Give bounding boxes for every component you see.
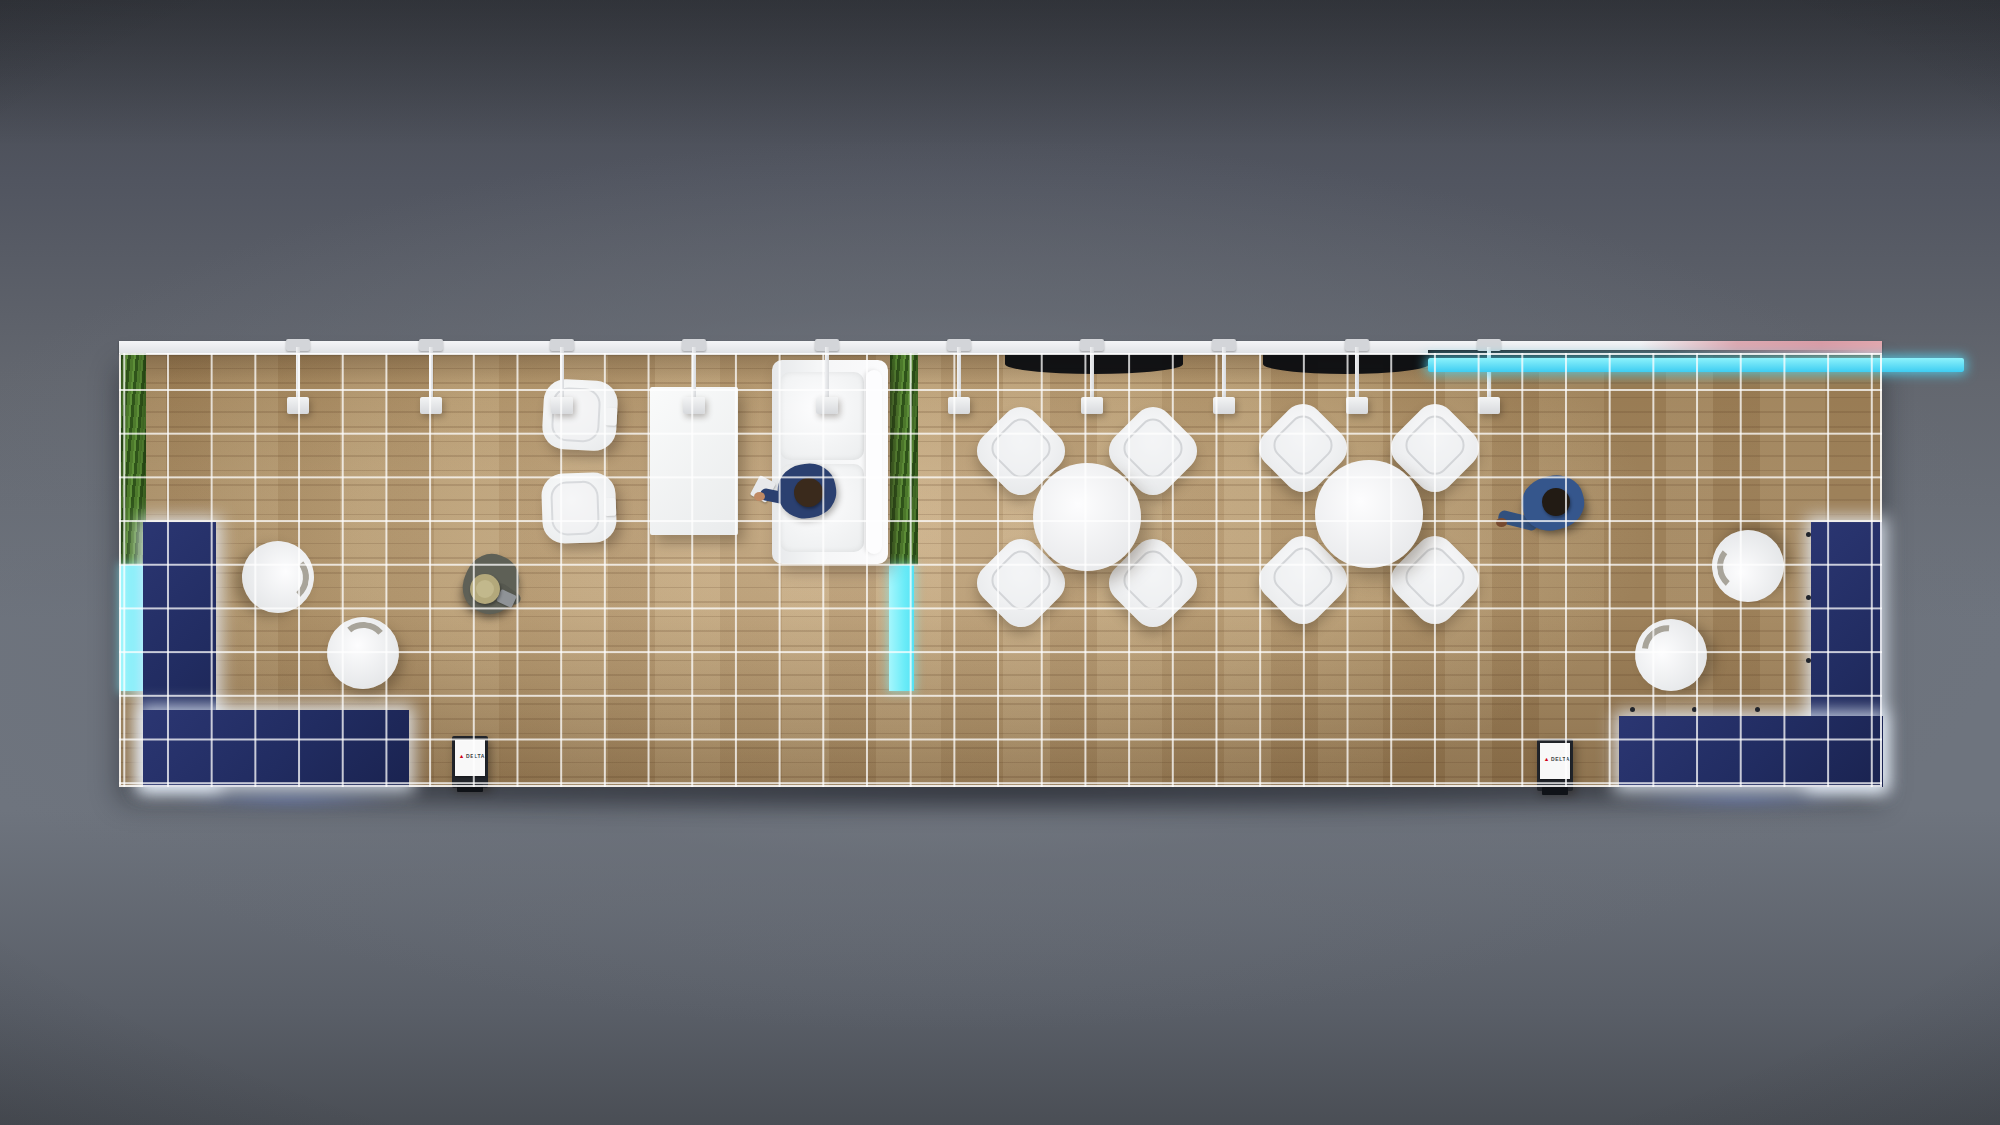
sq-tab bbox=[604, 498, 617, 516]
counter-left-horizontal bbox=[143, 710, 409, 787]
p-head bbox=[794, 478, 823, 507]
dc-inner bbox=[1268, 410, 1339, 481]
ceiling-lamp bbox=[681, 337, 707, 417]
ceiling-lamp bbox=[1344, 337, 1370, 417]
lamp-stem bbox=[1487, 347, 1491, 401]
dc-inner bbox=[1400, 542, 1471, 613]
led-panel-center bbox=[889, 565, 914, 691]
tub-chair-left-1 bbox=[239, 538, 317, 616]
ceiling-lamp bbox=[946, 337, 972, 417]
sign-stand-right: ▴DELTA bbox=[1537, 735, 1573, 795]
lamp-head bbox=[287, 397, 309, 414]
lamp-stem bbox=[1222, 347, 1226, 401]
ceiling-lamp bbox=[1079, 337, 1105, 417]
booth-render-scene: ▴DELTA▴DELTA bbox=[0, 0, 2000, 1125]
ceiling-lamp bbox=[549, 337, 575, 417]
lamp-stem bbox=[692, 347, 696, 401]
planter-hedge-center bbox=[890, 353, 918, 565]
lamp-stem bbox=[825, 347, 829, 401]
p-head bbox=[1542, 488, 1570, 516]
counter-fitting bbox=[1806, 658, 1811, 663]
sign-logo: ▴ bbox=[1543, 756, 1550, 764]
ceiling-lamp bbox=[285, 337, 311, 417]
lounge-armchair-square-2 bbox=[541, 472, 617, 545]
lamp-stem bbox=[1355, 347, 1359, 401]
lamp-head bbox=[1478, 397, 1500, 414]
lamp-stem bbox=[957, 347, 961, 401]
round-table-2 bbox=[1315, 460, 1423, 568]
sign-text: DELTA bbox=[466, 753, 484, 761]
lamp-stem bbox=[296, 347, 300, 401]
p-hand bbox=[1496, 518, 1507, 527]
dc-inner bbox=[1118, 413, 1189, 484]
lamp-stem bbox=[429, 347, 433, 401]
lamp-stem bbox=[1090, 347, 1094, 401]
counter-fitting bbox=[1755, 707, 1760, 712]
sign-stand-left: ▴DELTA bbox=[452, 732, 488, 792]
counter-fitting bbox=[1806, 532, 1811, 537]
lamp-head bbox=[816, 397, 838, 414]
lamp-head bbox=[1081, 397, 1103, 414]
lamp-head bbox=[420, 397, 442, 414]
lamp-head bbox=[948, 397, 970, 414]
ceiling-lamp bbox=[418, 337, 444, 417]
lamp-head bbox=[1346, 397, 1368, 414]
led-underglow-left bbox=[128, 784, 448, 812]
counter-fitting bbox=[1692, 707, 1697, 712]
dc-inner bbox=[1400, 410, 1471, 481]
visitor-standing-right bbox=[1496, 462, 1606, 554]
sign-card: ▴DELTA bbox=[455, 740, 485, 776]
counter-fitting bbox=[1806, 595, 1811, 600]
sign-base bbox=[1542, 787, 1568, 795]
led-lightbar-top bbox=[1428, 358, 1964, 372]
tub-chair-right-1 bbox=[1709, 527, 1787, 605]
sq-tab bbox=[604, 407, 617, 426]
p-hand bbox=[754, 492, 765, 501]
round-table-1 bbox=[1033, 463, 1141, 571]
counter-fitting bbox=[1630, 707, 1635, 712]
lamp-head bbox=[683, 397, 705, 414]
sign-text: DELTA bbox=[1551, 756, 1569, 764]
visitor-seated-sofa bbox=[752, 448, 848, 544]
dc-inner bbox=[1268, 542, 1339, 613]
sign-card: ▴DELTA bbox=[1540, 743, 1570, 779]
lamp-head bbox=[1213, 397, 1235, 414]
dc-inner bbox=[1118, 545, 1189, 616]
ceiling-lamp bbox=[1476, 337, 1502, 417]
p-headtop bbox=[476, 580, 494, 598]
sign-logo: ▴ bbox=[458, 753, 465, 761]
ceiling-lamp bbox=[1211, 337, 1237, 417]
ceiling-lamp bbox=[814, 337, 840, 417]
dc-inner bbox=[986, 413, 1057, 484]
tub-chair-left-2 bbox=[324, 614, 402, 692]
lamp-stem bbox=[560, 347, 564, 401]
visitor-standing-left bbox=[450, 548, 534, 632]
sq-inner bbox=[550, 480, 600, 536]
counter-right-horizontal bbox=[1619, 716, 1883, 787]
sofa-back bbox=[866, 370, 882, 554]
lamp-head bbox=[551, 397, 573, 414]
sign-base bbox=[457, 784, 483, 792]
dc-inner bbox=[986, 545, 1057, 616]
led-underglow-right bbox=[1580, 784, 1900, 812]
